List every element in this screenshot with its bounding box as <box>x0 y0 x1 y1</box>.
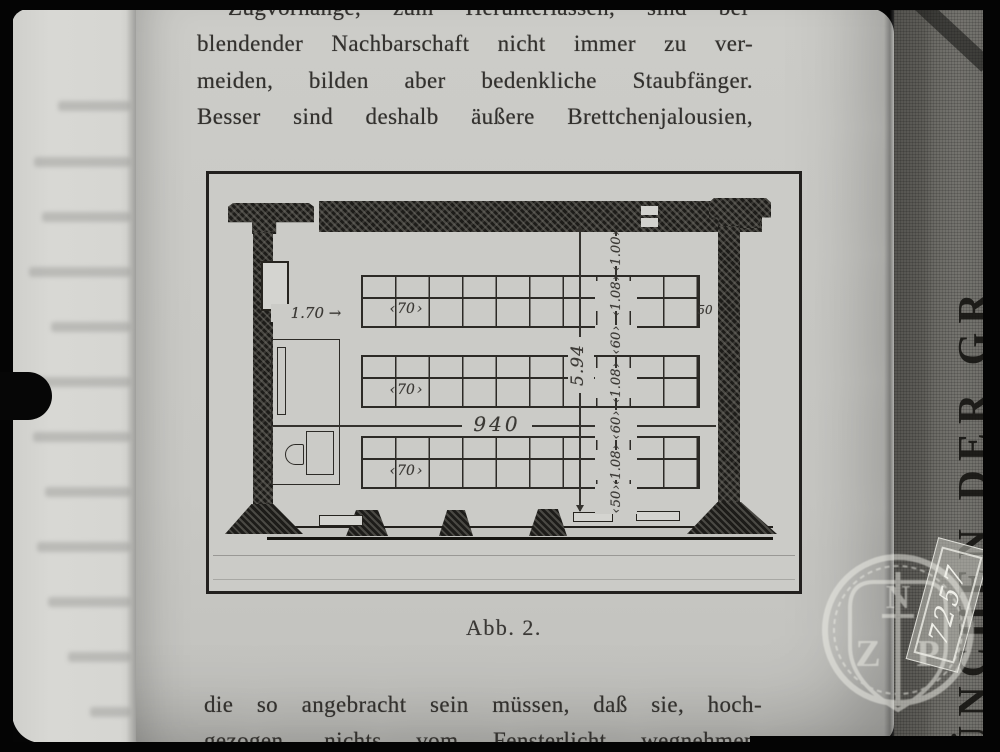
corner-pier-left <box>225 504 303 534</box>
dim-chain-label: 50 <box>595 484 637 514</box>
figure-caption: Abb. 2. <box>206 615 802 641</box>
paragraph-top-line-2: blendender Nachbarschaft nicht immer zu … <box>197 31 753 57</box>
dim-chain-label: 60 <box>595 325 637 355</box>
dim-value: 60 <box>609 332 624 349</box>
dim-chain-label: 1.08 <box>595 368 637 398</box>
photo-border-top <box>0 0 1000 10</box>
paragraph-top-line-4: Besser sind deshalb äußere Brettchenjalo… <box>197 104 753 130</box>
ground-line <box>213 579 795 580</box>
dim-label-5-94: 5.94 <box>568 337 594 393</box>
dim-value: 1.00 <box>609 237 624 266</box>
blackboard <box>277 347 286 415</box>
top-wall-opening <box>641 206 658 215</box>
dim-label-70: 70 <box>383 463 429 479</box>
dim-chain-label: 1.08 <box>595 450 637 480</box>
ghost-text-line <box>58 101 130 111</box>
ghost-text-line <box>29 267 130 277</box>
paragraph-bottom-line-1: die so angebracht sein müssen, daß sie, … <box>204 692 762 718</box>
stamp-emblem: N Z P <box>816 550 980 750</box>
teacher-desk <box>306 431 334 475</box>
ground-line <box>213 555 795 556</box>
corner-pier-right <box>687 502 777 534</box>
ghost-text-line <box>68 652 130 662</box>
dim-value: 70 <box>397 301 415 317</box>
photo-border-right <box>983 0 1000 752</box>
ghost-text-line <box>45 487 130 497</box>
dim-chain-label: 1.00 <box>595 236 637 266</box>
window-pier <box>439 510 473 536</box>
dim-value: 50 <box>609 491 624 508</box>
photo-border-bottom-right <box>750 736 1000 752</box>
dim-label-70: 70 <box>383 382 429 398</box>
dim-value: 1.08 <box>609 451 624 480</box>
left-pillar-cap <box>228 203 314 234</box>
ghost-text-line <box>37 542 130 552</box>
ghost-text-line <box>51 322 130 332</box>
library-stamp-watermark: N Z P <box>816 550 980 750</box>
ghost-text-line <box>48 597 130 607</box>
paragraph-top-line-3: meiden, bilden aber bedenkliche Staubfän… <box>197 68 753 94</box>
dim-label-1-70: 1.70 → <box>271 304 361 322</box>
ghost-text-line <box>33 432 130 442</box>
ghost-text-line <box>34 157 130 167</box>
dim-value: 70 <box>397 382 415 398</box>
dim-label-940: 940 <box>462 412 532 436</box>
dim-value: 1.70 <box>291 304 324 322</box>
dim-chain-label: 1.08 <box>595 281 637 311</box>
scanned-book-page: Zugvorhänge, zum Herunterlassen, sind be… <box>0 0 1000 752</box>
dim-label-70: 70 <box>383 301 429 317</box>
stamp-letter-right: P <box>916 633 939 675</box>
film-notch-tab <box>0 372 52 420</box>
right-wall <box>718 226 740 508</box>
top-wall <box>319 201 762 232</box>
window-pier <box>529 509 567 536</box>
ghost-text-line <box>90 707 130 717</box>
dim-value: 1.08 <box>609 369 624 398</box>
dim-value: 1.08 <box>609 282 624 311</box>
dim-value: 60 <box>609 417 624 434</box>
top-wall-opening <box>641 218 658 227</box>
dim-value: 70 <box>397 463 415 479</box>
ghost-text-line <box>42 212 130 222</box>
teacher-chair <box>285 444 304 465</box>
dim-chain-label: 60 <box>595 410 637 440</box>
stamp-letter-left: Z <box>855 633 880 675</box>
floor-plan-figure: 1.70 → 70 70 70 940 5.94 1.00 1.08 60 1.… <box>206 171 802 594</box>
dim-label-50: 50 <box>691 303 719 317</box>
window <box>319 515 363 526</box>
window <box>636 511 680 521</box>
stamp-letter-top: N <box>886 579 911 616</box>
